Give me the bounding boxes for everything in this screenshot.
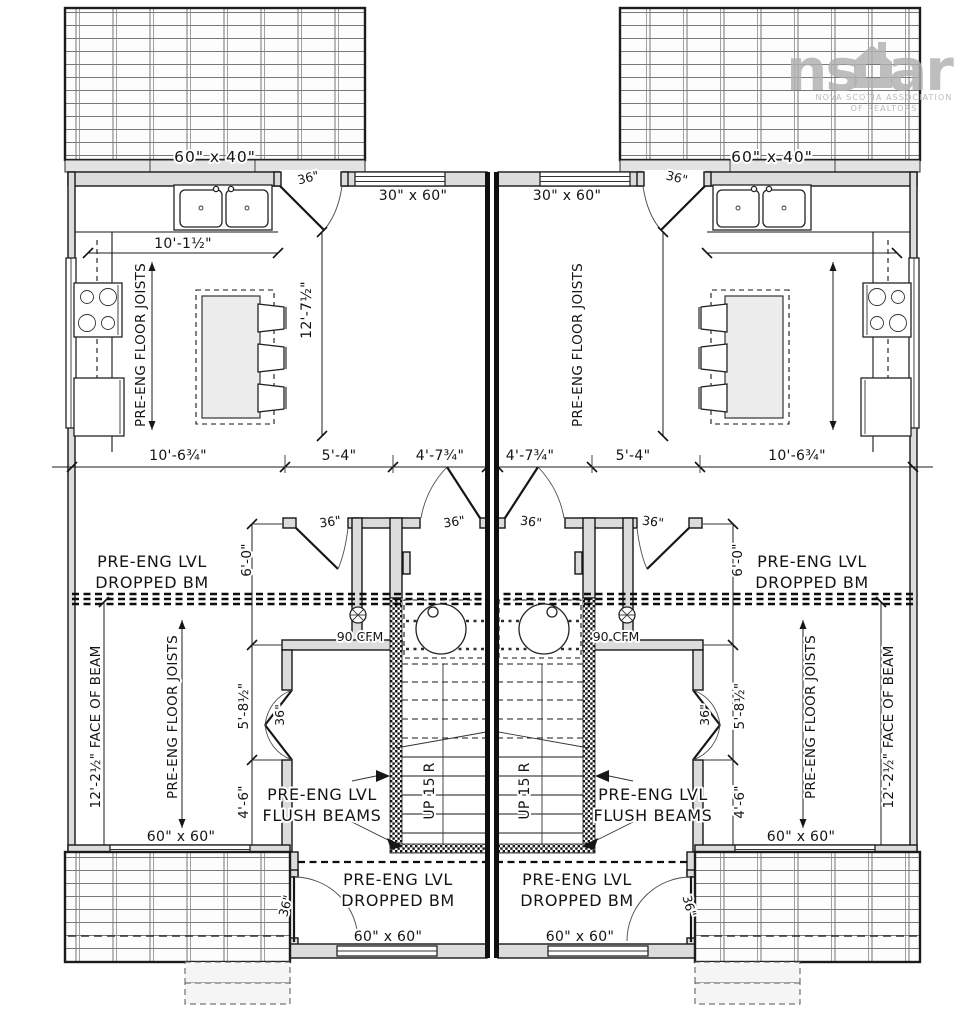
floor-plan-sheet: 60" x 40" 60" x 40" 30" x 60" 30" x 60" … (0, 0, 968, 1019)
dim-5-4-right: 5'-4" (616, 448, 651, 464)
dim-4-6-left: 4'-6" (236, 785, 252, 818)
deck-step (185, 983, 290, 1004)
closet-door-size-right: 36" (641, 513, 665, 531)
dropped-bm-bottom-left-1: PRE-ENG LVL (343, 870, 453, 889)
kitchen-width-dim: 10'-1½" (154, 236, 212, 252)
rear-lower-window (337, 946, 437, 956)
dim-5-4-left: 5'-4" (322, 448, 357, 464)
dim-4-7-left: 4'-7¾" (416, 448, 465, 464)
nsar-subtitle-line2: OF REALTORS (851, 104, 918, 113)
deck-size-label-right: 60" x 40" (731, 148, 813, 166)
dropped-bm-note-left-2: DROPPED BM (95, 573, 209, 592)
right-unit-geometry (493, 8, 933, 1004)
lower-window-label-left: 60" x 60" (354, 929, 422, 945)
dropped-bm-bottom-right-1: PRE-ENG LVL (522, 870, 632, 889)
deck-window-label-left: 60" x 60" (147, 829, 215, 845)
kitchen-island (196, 290, 286, 424)
floor-joists-note-right-lower: PRE-ENG FLOOR JOISTS (803, 635, 819, 799)
front-deck (65, 852, 290, 1004)
flush-beams-note-right-2: FLUSH BEAMS (594, 806, 713, 825)
stairs-up-label-left: UP 15 R (422, 762, 438, 819)
bath-door-size-left: 36" (442, 513, 466, 531)
lower-window-label-right: 60" x 60" (546, 929, 614, 945)
fan-label-left: 90 CFM (337, 629, 384, 644)
dropped-beam-line (72, 594, 487, 604)
deck-size-label-left: 60" x 40" (174, 148, 256, 166)
floor-joists-note-left-kitchen: PRE-ENG FLOOR JOISTS (133, 263, 149, 427)
dim-6-0-left: 6'-0" (239, 543, 255, 576)
floor-plan-drawing: 60" x 40" 60" x 40" 30" x 60" 30" x 60" … (0, 0, 968, 1019)
dim-4-6-right: 4'-6" (732, 785, 748, 818)
dim-10-6-left: 10'-6¾" (149, 448, 207, 464)
floor-joists-note-left-lower: PRE-ENG FLOOR JOISTS (165, 635, 181, 799)
side-wall (66, 172, 76, 855)
fan-label-right: 90 CFM (593, 629, 640, 644)
kitchen-sink (174, 185, 272, 230)
storage-door-size-left: 36" (272, 704, 287, 726)
nsar-subtitle-line1: NOVA SCOTIA ASSOCIATION (816, 93, 953, 102)
deck-window-label-right: 60" x 60" (767, 829, 835, 845)
kitchen (74, 185, 327, 452)
bath-sink (416, 604, 466, 654)
dim-4-7-right: 4'-7¾" (506, 448, 555, 464)
storage-door-size-right: 36" (697, 704, 712, 726)
dim-10-6-right: 10'-6¾" (768, 448, 826, 464)
refrigerator (74, 378, 124, 436)
stairs-up-label-right: UP 15 R (517, 762, 533, 819)
flush-beam (390, 844, 488, 853)
dim-6-0-right: 6'-0" (730, 543, 746, 576)
party-wall (485, 172, 499, 958)
face-of-beam-label-left: 12'-2½" FACE OF BEAM (88, 645, 104, 808)
dropped-bm-note-right-2: DROPPED BM (755, 573, 869, 592)
dim-5-8-left: 5'-8½" (236, 683, 252, 730)
closet-door-size-left: 36" (318, 513, 342, 531)
flush-beams-note-right-1: PRE-ENG LVL (598, 785, 708, 804)
front-window-label-left: 30" x 60" (379, 188, 447, 204)
dim-5-8-right: 5'-8½" (732, 683, 748, 730)
dropped-bm-note-right-1: PRE-ENG LVL (757, 552, 867, 571)
kitchen-depth-dim: 12'-7½" (299, 281, 315, 339)
front-window-label-right: 30" x 60" (533, 188, 601, 204)
floor-joists-note-right-kitchen: PRE-ENG FLOOR JOISTS (570, 263, 586, 427)
flush-beams-note-left-1: PRE-ENG LVL (267, 785, 377, 804)
dropped-bm-bottom-left-2: DROPPED BM (341, 891, 455, 910)
stairs (396, 664, 492, 844)
deck-step (185, 962, 290, 983)
exhaust-fan-icon (350, 607, 366, 623)
front-window (355, 172, 445, 186)
left-unit-geometry (52, 8, 492, 1004)
stove (74, 283, 122, 337)
dropped-bm-note-left-1: PRE-ENG LVL (97, 552, 207, 571)
flush-beam-wall (390, 598, 402, 844)
dropped-bm-bottom-right-2: DROPPED BM (520, 891, 634, 910)
face-of-beam-label-right: 12'-2½" FACE OF BEAM (881, 645, 897, 808)
bath-door-size-right: 36" (519, 513, 543, 531)
flush-beams-note-left-2: FLUSH BEAMS (263, 806, 382, 825)
